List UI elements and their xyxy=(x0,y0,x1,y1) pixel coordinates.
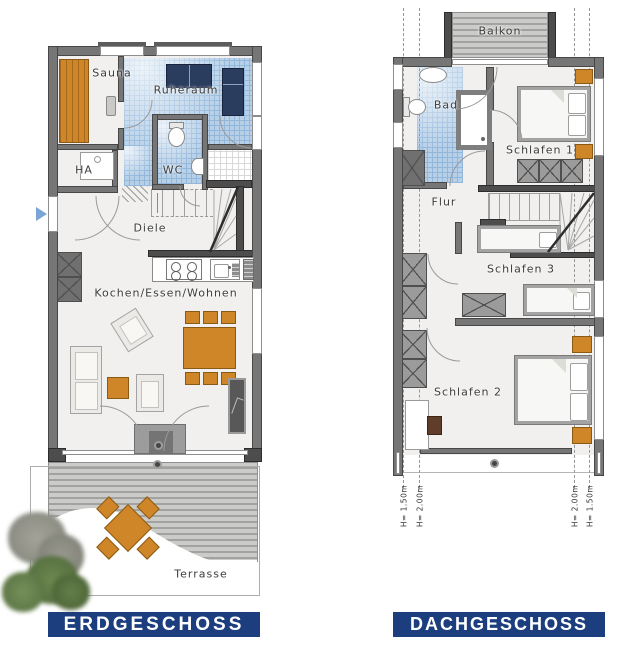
window xyxy=(156,46,230,56)
sofa-cushion xyxy=(75,382,98,410)
room-label-schlafen1: Schlafen 1 xyxy=(506,144,574,157)
wardrobe xyxy=(399,286,427,319)
dachgeschoss-title: DACHGESCHOSS xyxy=(393,612,605,637)
room-label-wc: WC xyxy=(163,164,184,177)
wall-bottom xyxy=(420,448,572,454)
room-label-flur: Flur xyxy=(432,196,457,209)
wall-kitchen xyxy=(148,250,262,257)
faucet-icon xyxy=(228,266,231,269)
white-tile-floor xyxy=(208,150,252,182)
wall-stairwell xyxy=(478,185,596,192)
room-label-ruheraum: Ruheraum xyxy=(154,84,219,97)
exterior-wall-left xyxy=(393,57,403,476)
sofa xyxy=(70,346,102,414)
bed-double xyxy=(515,356,591,424)
armchair-cushion xyxy=(119,316,148,345)
toilet xyxy=(168,127,185,147)
height-marker: H= 2.00m xyxy=(416,485,425,527)
balcony-door xyxy=(452,59,548,65)
wall xyxy=(48,144,118,150)
room-label-schlafen3: Schlafen 3 xyxy=(487,263,555,276)
roof-height-line xyxy=(403,8,404,488)
tree xyxy=(52,574,90,610)
dining-chair xyxy=(203,372,218,385)
flue-dot-icon xyxy=(492,461,497,466)
tv-cabinet xyxy=(228,378,246,434)
window xyxy=(252,288,262,354)
kitchen-sink xyxy=(210,259,240,280)
dining-chair xyxy=(203,311,218,324)
wardrobe xyxy=(399,359,427,388)
dining-table xyxy=(183,327,236,369)
blanket-fold xyxy=(567,288,577,298)
armchair xyxy=(136,374,164,412)
window xyxy=(393,64,403,90)
balcony-wall xyxy=(444,12,452,60)
wall xyxy=(48,186,118,193)
window xyxy=(100,46,144,56)
toilet xyxy=(408,99,426,115)
wall xyxy=(455,222,462,254)
wall-stairwell xyxy=(510,252,596,258)
burner-icon xyxy=(187,271,197,281)
bed-single xyxy=(524,285,594,315)
desk-chair xyxy=(427,416,442,435)
blanket-fold xyxy=(552,359,566,373)
stove xyxy=(166,259,202,280)
sink-basin xyxy=(214,264,229,278)
tv-mark-icon xyxy=(231,397,243,415)
room-label-ha: HA xyxy=(75,164,93,177)
drain-icon xyxy=(481,137,485,141)
stair-direction-line xyxy=(157,193,158,213)
room-label-wohnen: Kochen/Essen/Wohnen xyxy=(94,287,237,300)
window-channel xyxy=(597,452,601,474)
staircase-flight xyxy=(488,193,560,221)
wardrobe xyxy=(539,159,561,183)
room-label-diele: Diele xyxy=(133,222,166,235)
entrance-arrow-icon xyxy=(36,207,54,221)
nightstand xyxy=(575,144,593,159)
window xyxy=(594,280,604,318)
window xyxy=(252,62,262,116)
room-label-sauna: Sauna xyxy=(92,67,131,80)
window xyxy=(393,122,403,148)
wardrobe xyxy=(399,253,427,286)
bed-double xyxy=(518,87,590,141)
floorplan-scene: Sauna Ruheraum HA WC Diele Kochen/Essen/… xyxy=(0,0,640,657)
window xyxy=(594,336,604,440)
fireplace-firebox xyxy=(149,431,173,453)
bottom-strip xyxy=(403,455,594,473)
erdgeschoss-title: ERDGESCHOSS xyxy=(48,612,260,637)
wardrobe xyxy=(399,330,427,359)
nightstand xyxy=(572,427,592,444)
room-label-balkon: Balkon xyxy=(478,25,521,38)
terrace-dot-icon xyxy=(155,462,160,467)
wall-wc xyxy=(152,114,158,190)
wardrobe xyxy=(517,159,539,183)
cabinet xyxy=(462,293,506,317)
dachgeschoss-plan: Balkon Bad Flur Schlafen 1 Schlafen 3 Sc… xyxy=(320,0,640,657)
fireplace xyxy=(134,424,186,454)
flue-dot-icon xyxy=(156,443,161,448)
sink xyxy=(419,67,447,83)
threshold-hatch xyxy=(122,186,148,202)
pillow xyxy=(570,393,588,421)
height-marker: H= 1.50m xyxy=(400,485,409,527)
armchair-cushion xyxy=(141,381,159,408)
pillow xyxy=(539,232,557,248)
tree xyxy=(2,572,44,612)
room-label-terrasse: Terrasse xyxy=(174,568,227,581)
desk xyxy=(405,400,429,450)
kitchen-appliance xyxy=(243,259,254,280)
nightstand xyxy=(572,336,592,353)
wall-stub xyxy=(480,219,506,226)
dining-chair xyxy=(221,311,236,324)
staircase-flight-dashed xyxy=(151,189,213,217)
chimney xyxy=(56,277,82,302)
drainboard xyxy=(232,263,239,277)
wall-wc xyxy=(152,184,184,190)
window-channel xyxy=(396,452,400,474)
balcony-wall xyxy=(548,12,556,60)
height-marker: H= 2.00m xyxy=(571,485,580,527)
wall-stairwell xyxy=(206,180,252,188)
wall xyxy=(118,128,124,150)
blanket-fold xyxy=(551,90,564,103)
shower xyxy=(456,90,492,150)
window xyxy=(594,78,604,156)
sauna-bench xyxy=(59,59,89,143)
sink xyxy=(191,158,204,175)
wall-stairwell xyxy=(236,186,244,252)
nightstand xyxy=(575,69,593,84)
room-label-schlafen2: Schlafen 2 xyxy=(434,386,502,399)
erdgeschoss-plan: Sauna Ruheraum HA WC Diele Kochen/Essen/… xyxy=(0,0,320,657)
height-marker: H= 1.50m xyxy=(586,485,595,527)
coffee-table xyxy=(107,377,129,399)
wardrobe xyxy=(561,159,583,183)
chimney xyxy=(56,252,82,277)
wall-wc xyxy=(152,114,208,120)
wall xyxy=(208,144,252,150)
pillow xyxy=(568,93,586,114)
sofa-cushion xyxy=(75,352,98,380)
burner-icon xyxy=(171,271,181,281)
bed-single xyxy=(478,226,560,252)
appliance-knob-icon xyxy=(94,156,101,163)
room-label-bad: Bad xyxy=(434,99,458,112)
lounger-divider xyxy=(223,84,243,85)
exterior-wall-left xyxy=(48,46,58,462)
pillow xyxy=(568,115,586,136)
vorraum-tile-floor xyxy=(124,146,152,186)
pillow xyxy=(570,363,588,391)
lounger xyxy=(222,68,244,116)
wall-wc xyxy=(202,114,208,190)
door-opening-garden xyxy=(252,116,262,150)
sauna-heater xyxy=(106,96,116,116)
dining-chair xyxy=(185,372,200,385)
dining-chair xyxy=(185,311,200,324)
wall-schlafen2 xyxy=(455,318,596,326)
